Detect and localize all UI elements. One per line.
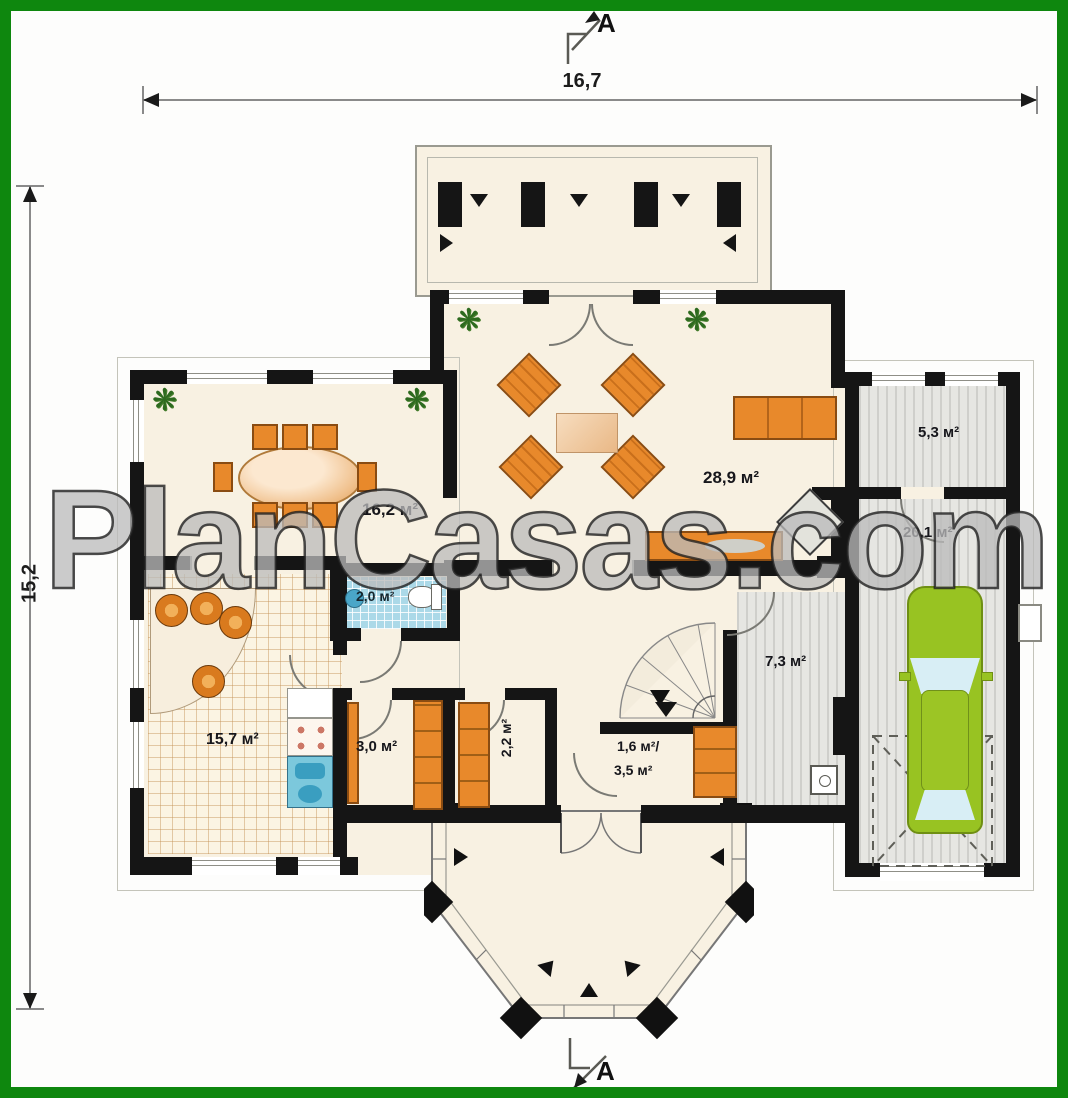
car-roof [921,690,969,792]
wardrobe [458,702,490,808]
wardrobe [413,700,443,810]
bay-porch [424,799,754,1044]
window [130,400,144,462]
room-label-closet: 2,2 м² [498,710,514,766]
plant-icon: ❋ [404,386,429,416]
room-label-kitchen: 15,7 м² [206,731,259,749]
window [187,370,267,384]
wall [545,688,557,812]
radiator [833,697,845,755]
room-label-stair-2: 3,5 м² [614,762,652,778]
water-heater [810,765,838,795]
dining-chair [312,424,338,450]
dimension-arrow-down-icon [23,993,37,1009]
kitchen-sink [287,756,333,808]
terrace-column [521,182,545,227]
terrace-arrow-right-icon [440,234,453,252]
wall [443,688,455,812]
window [130,620,144,688]
window [192,857,276,875]
dimension-arrow-right-icon [1021,93,1037,107]
section-label-top: A [597,8,616,39]
terrace-column [717,182,741,227]
room-label-corridor: 7,3 м² [765,653,806,670]
wall [130,370,445,384]
window [872,372,925,386]
wall [401,628,460,641]
dimension-label-width: 16,7 [532,70,632,93]
room-label-stair-1: 1,6 м²/ [617,738,659,754]
watermark: PlanCasas.com [44,458,1047,621]
dimension-arrow-up-icon [23,186,37,202]
dimension-line-top [143,99,1037,101]
window [313,370,393,384]
kitchen-counter [287,688,333,718]
wall [845,372,859,877]
room-label-storage: 5,3 м² [918,424,959,441]
wall [330,628,361,641]
car-mirror [899,672,911,681]
bar-stool [192,665,225,698]
heater-dial [819,775,831,787]
car-mirror [981,672,993,681]
terrace-arrow-down-icon [470,194,488,207]
window [945,372,998,386]
window [130,722,144,788]
wall [523,290,549,304]
stove [287,718,333,756]
wall [333,700,347,857]
dimension-arrow-left-icon [143,93,159,107]
terrace-column [634,182,658,227]
wall [831,290,845,388]
plant-icon: ❋ [456,306,481,336]
wall [641,805,845,823]
dining-chair [282,424,308,450]
window [298,857,340,875]
car [901,586,989,836]
wall [333,805,561,823]
wardrobe [693,726,737,798]
window [449,290,523,304]
section-label-bottom: A [596,1056,615,1087]
plant-icon: ❋ [152,386,177,416]
terrace-inner-line [427,157,758,283]
terrace-column [438,182,462,227]
wall [430,290,444,384]
room-label-pantry: 3,0 м² [356,738,397,755]
coffee-table [556,413,618,453]
floor-plan-image: ❋ ❋ ❋ ❋ [0,0,1068,1098]
dining-chair [252,424,278,450]
wall [716,290,845,304]
sofa [733,396,837,440]
sink-basin [298,785,322,803]
window [660,290,716,304]
wall [633,290,660,304]
terrace-arrow-down-icon [672,194,690,207]
car-windshield [910,658,980,694]
sink-basin [295,763,325,779]
stair-down-arrow-icon [655,702,677,717]
plant-icon: ❋ [684,306,709,336]
terrace-arrow-left-icon [723,234,736,252]
car-rear-window [915,790,975,820]
dimension-label-height: 15,2 [19,554,42,614]
terrace-arrow-down-icon [570,194,588,207]
wall [333,688,352,700]
